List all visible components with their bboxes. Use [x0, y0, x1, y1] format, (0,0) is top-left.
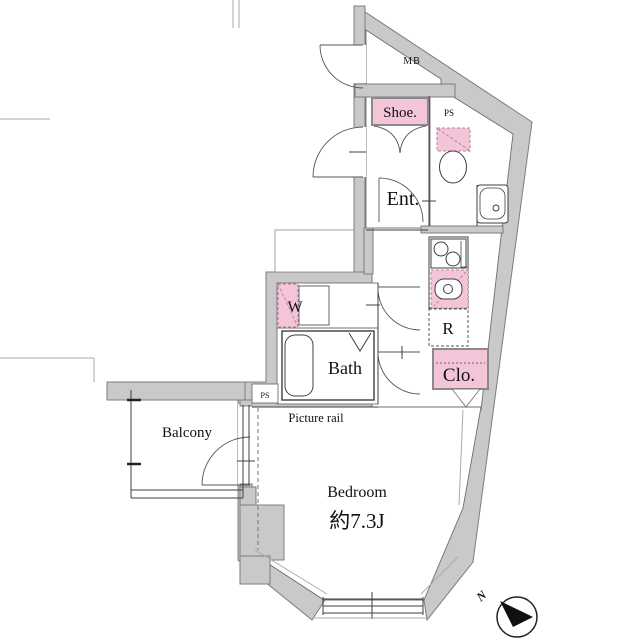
- label-entrance: Ent.: [387, 188, 420, 210]
- label-closet: Clo.: [443, 365, 475, 386]
- washbasin-drain: [493, 205, 499, 211]
- compass-n-label: N: [473, 587, 490, 605]
- kitchen-icon: [429, 237, 468, 308]
- stove-burner-2: [446, 252, 460, 266]
- stove-burner-1: [434, 242, 448, 256]
- balcony-door-jamb-top: [240, 400, 252, 406]
- compass: N: [473, 587, 537, 637]
- washbasin-icon: [477, 185, 508, 223]
- sink-drain: [444, 285, 453, 294]
- label-bath: Bath: [328, 358, 362, 378]
- label-washer: W: [287, 299, 303, 316]
- label-ps-upper: PS: [444, 108, 454, 118]
- balcony-door-gap: [238, 404, 253, 485]
- floor-plan-page: MB PS Shoe. Ent. W Bath R Clo. PS Pictur…: [0, 0, 640, 640]
- label-mb: MB: [403, 56, 421, 67]
- bathtub: [285, 335, 313, 396]
- label-balcony: Balcony: [162, 425, 212, 441]
- floor-plan: MB PS Shoe. Ent. W Bath R Clo. PS Pictur…: [0, 0, 640, 640]
- void-box: [275, 230, 356, 272]
- label-picture-rail: Picture rail: [288, 411, 344, 425]
- hall-side-wall: [364, 228, 373, 274]
- washbasin-bowl: [480, 188, 505, 219]
- balcony-top-wall: [107, 382, 245, 400]
- mb-bottom-wall: [355, 84, 455, 97]
- toilet-bottom-wall: [421, 226, 503, 233]
- label-shoe: Shoe.: [383, 105, 417, 121]
- label-bedroom: Bedroom: [327, 484, 387, 501]
- label-ps-lower: PS: [261, 391, 270, 400]
- toilet-bowl: [440, 151, 467, 183]
- corridor-lines: [0, 0, 239, 382]
- mb-door-gap: [353, 45, 366, 83]
- label-bedroom-size: 約7.3J: [329, 509, 384, 533]
- washer-pan: [299, 286, 329, 325]
- bedroom-left-pillar-c: [240, 556, 270, 584]
- label-refrigerator: R: [442, 319, 454, 338]
- bedroom-left-pillar-b: [240, 505, 284, 560]
